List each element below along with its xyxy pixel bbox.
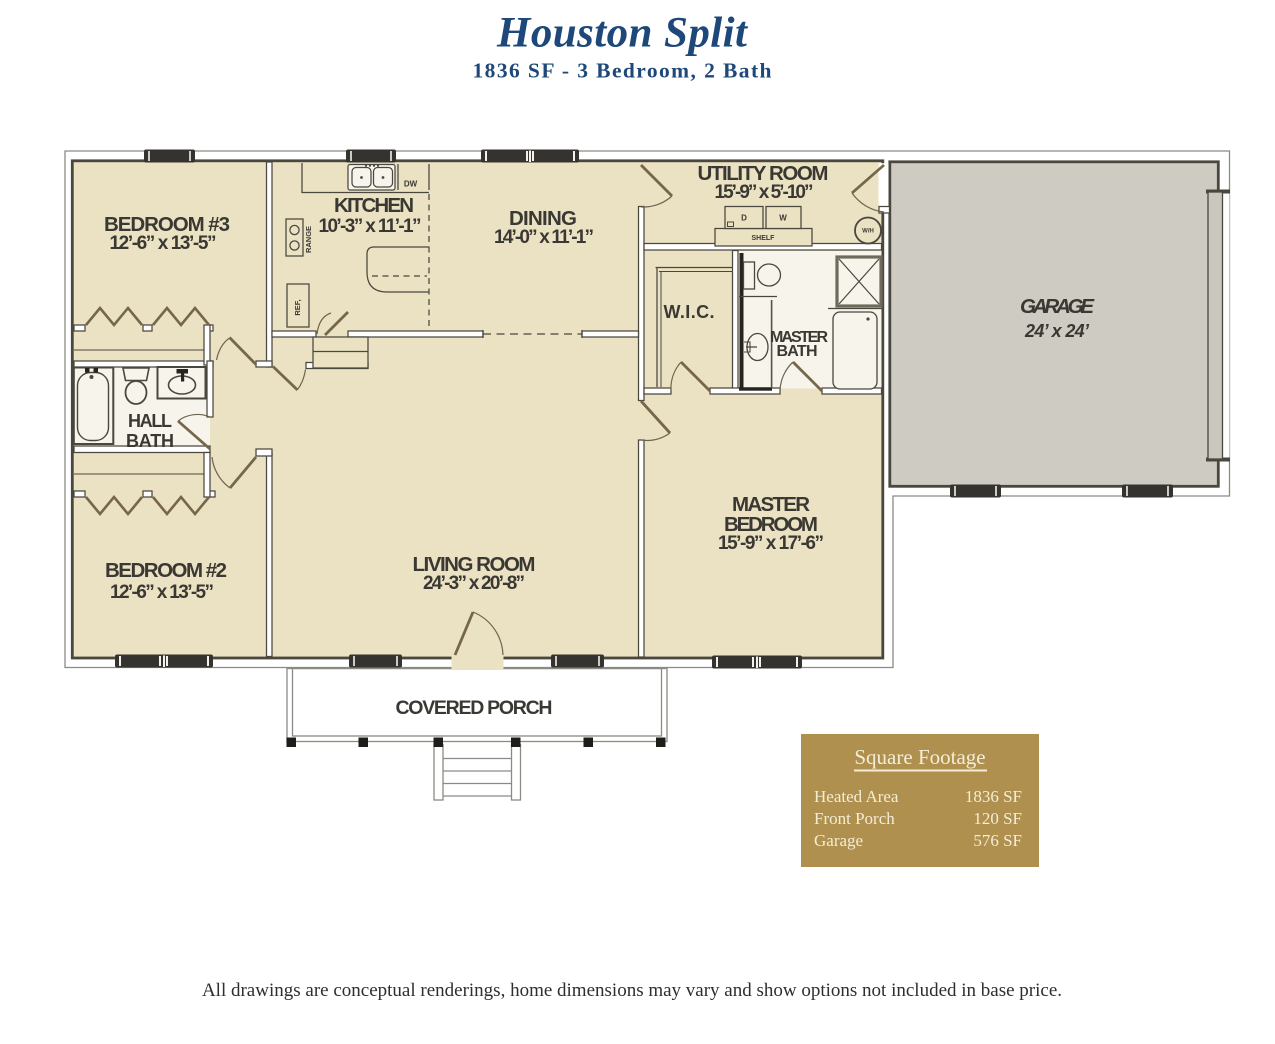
svg-text:BATH: BATH xyxy=(126,431,174,451)
svg-text:W: W xyxy=(779,214,787,223)
svg-text:14’-0” x 11’-1”: 14’-0” x 11’-1” xyxy=(494,227,594,248)
svg-text:15’-9” x 17’-6”: 15’-9” x 17’-6” xyxy=(718,533,824,554)
svg-text:COVERED PORCH: COVERED PORCH xyxy=(396,697,553,719)
svg-text:BEDROOM #2: BEDROOM #2 xyxy=(105,559,227,582)
svg-text:W.I.C.: W.I.C. xyxy=(664,302,715,322)
svg-text:1836 SF - 3 Bedroom, 2 Bath: 1836 SF - 3 Bedroom, 2 Bath xyxy=(473,59,772,83)
svg-text:Garage: Garage xyxy=(814,831,863,850)
svg-text:24’-3” x 20’-8”: 24’-3” x 20’-8” xyxy=(423,573,525,594)
svg-text:1836 SF: 1836 SF xyxy=(965,787,1022,806)
svg-text:576 SF: 576 SF xyxy=(973,831,1022,850)
svg-text:Square Footage: Square Footage xyxy=(854,745,985,769)
svg-text:REF,: REF, xyxy=(293,299,302,315)
svg-text:W/H: W/H xyxy=(862,229,874,235)
svg-text:BATH: BATH xyxy=(777,343,818,360)
svg-text:24’ x 24’: 24’ x 24’ xyxy=(1024,321,1090,341)
svg-text:DW: DW xyxy=(404,180,418,189)
svg-text:10’-3” x 11’-1”: 10’-3” x 11’-1” xyxy=(319,216,422,237)
svg-text:12’-6” x 13’-5”: 12’-6” x 13’-5” xyxy=(110,233,217,254)
svg-text:GARAGE: GARAGE xyxy=(1020,295,1095,318)
svg-text:Front Porch: Front Porch xyxy=(814,809,895,828)
svg-text:HALL: HALL xyxy=(128,411,172,431)
svg-text:Houston Split: Houston Split xyxy=(496,10,749,57)
svg-text:12’-6” x 13’-5”: 12’-6” x 13’-5” xyxy=(110,582,214,603)
svg-text:D: D xyxy=(741,214,747,223)
svg-text:SHELF: SHELF xyxy=(752,235,776,242)
svg-text:15’-9” x 5’-10”: 15’-9” x 5’-10” xyxy=(715,182,814,203)
svg-text:120 SF: 120 SF xyxy=(973,809,1022,828)
svg-text:Heated Area: Heated Area xyxy=(814,787,899,806)
svg-text:All drawings are conceptual re: All drawings are conceptual renderings, … xyxy=(202,980,1062,1001)
svg-text:KITCHEN: KITCHEN xyxy=(334,194,414,217)
svg-text:RANGE: RANGE xyxy=(304,226,313,253)
